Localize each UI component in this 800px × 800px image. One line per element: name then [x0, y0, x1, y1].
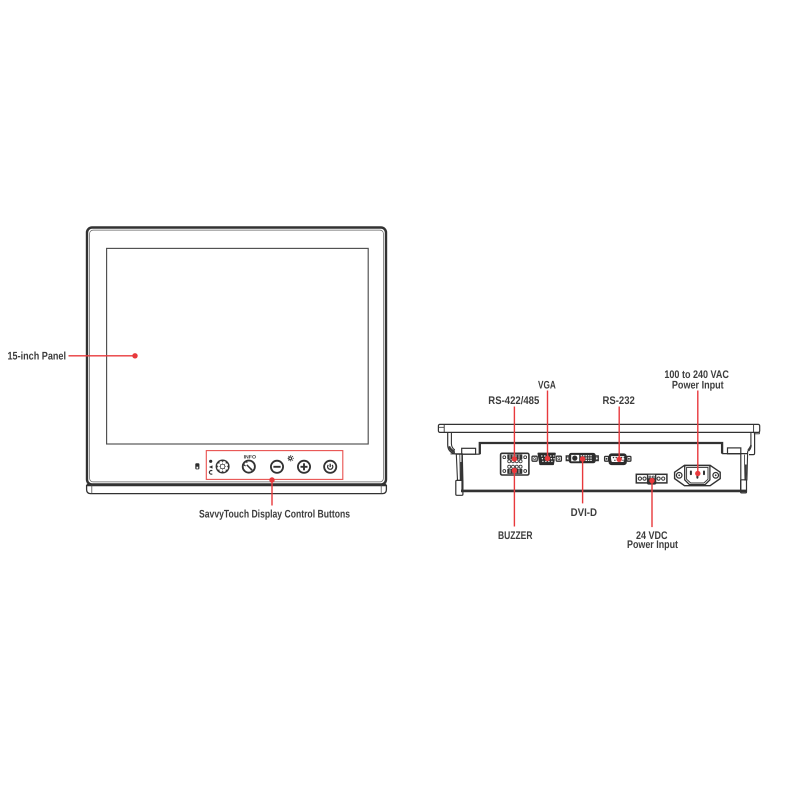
svg-text:DVI-D: DVI-D	[571, 507, 597, 519]
svg-text:INFO: INFO	[244, 455, 257, 461]
svg-text:RS-422/485: RS-422/485	[488, 395, 539, 407]
svg-text:Power Input: Power Input	[627, 539, 678, 551]
svg-text:BUZZER: BUZZER	[498, 530, 533, 542]
svg-text:SavvyTouch Display Control But: SavvyTouch Display Control Buttons	[199, 509, 350, 521]
svg-text:RS-232: RS-232	[603, 395, 635, 407]
svg-text:15-inch Panel: 15-inch Panel	[8, 351, 67, 363]
svg-text:VGA: VGA	[538, 379, 556, 391]
svg-text:Power Input: Power Input	[672, 379, 724, 391]
